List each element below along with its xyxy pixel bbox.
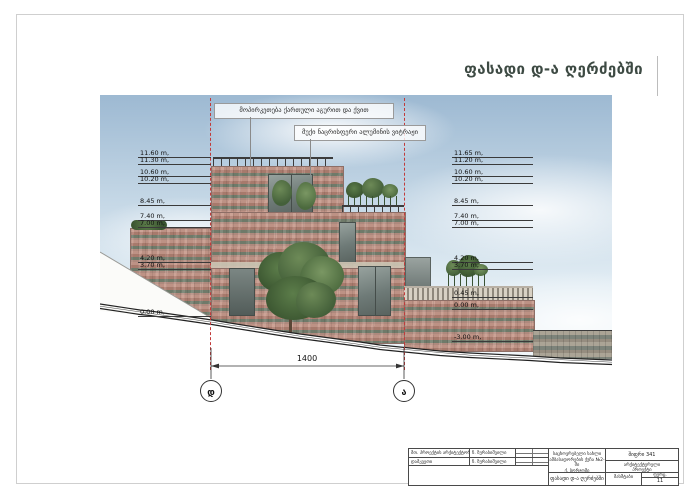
titleblock-code: შიფრი 341	[606, 449, 678, 461]
titleblock-scale-label: მასშტაბი	[606, 473, 642, 485]
arrowhead-right	[396, 364, 404, 369]
date-divider	[516, 453, 548, 454]
titleblock-date2	[516, 458, 549, 466]
extension-lines	[211, 348, 404, 379]
arrowhead-left	[211, 364, 219, 369]
drawing-sheet: ფასადი დ-ა ღერძებში მოპირ	[0, 0, 700, 495]
titleblock-sheet-title: ფასადი დ-ა ღერძებში	[549, 473, 606, 485]
dimension-value: 1400	[297, 354, 317, 363]
titleblock-empty	[409, 466, 549, 485]
grid-letter-a: ა	[402, 388, 407, 398]
titleblock-role1: მთ. პროექტის არქიტექტორი	[409, 449, 470, 458]
page-title: ფასადი დ-ა ღერძებში	[464, 60, 643, 78]
titleblock-date1	[516, 449, 549, 458]
titleblock-sheet-number: 11	[642, 478, 678, 485]
project-line2: ამბასადორების ქუჩა №2-ში	[549, 458, 605, 469]
titleblock-name1: ნ. ზურაბიშვილი	[470, 449, 516, 458]
fold-mark	[657, 56, 658, 96]
dimension-overlay: 1400 დ ა	[100, 95, 612, 435]
titleblock-org: არქიტექტურული პროექტი	[606, 461, 678, 473]
titleblock-name2: ნ. ზურაბიშვილი	[470, 458, 516, 466]
title-block: მთ. პროექტის არქიტექტორი ნ. ზურაბიშვილი …	[408, 448, 679, 486]
grid-letter-d: დ	[207, 388, 215, 398]
titleblock-role2: დამკვეთი	[409, 458, 470, 466]
date-divider	[516, 462, 548, 463]
project-line1: საცხოვრებელი სახლი	[549, 452, 605, 458]
titleblock-project: საცხოვრებელი სახლი ამბასადორების ქუჩა №2…	[549, 449, 606, 473]
